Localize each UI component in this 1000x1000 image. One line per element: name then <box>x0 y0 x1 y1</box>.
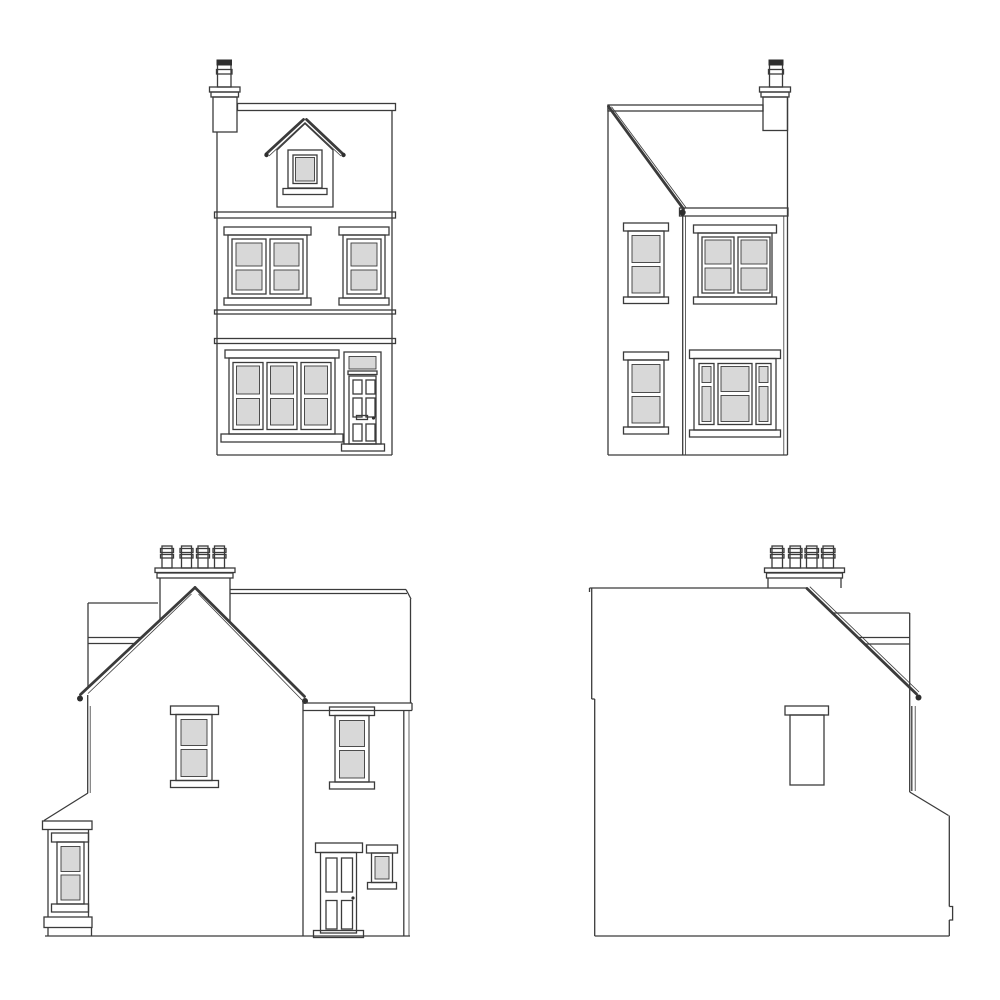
first-floor-double-sash-window <box>694 225 777 304</box>
glazing-pane <box>721 367 749 392</box>
window-sill <box>368 883 397 890</box>
side-bay <box>43 793 93 936</box>
chimney-pot-top <box>217 60 233 66</box>
chimney-pot-top <box>769 60 784 66</box>
fascia-band <box>215 310 396 314</box>
glazing-pane <box>181 720 207 746</box>
glazing-pane <box>237 366 260 394</box>
chimney-cap-band <box>760 87 791 92</box>
glazing-pane <box>705 240 731 264</box>
front-door <box>342 352 385 451</box>
gable-dormer <box>264 120 345 208</box>
glazing-pane <box>271 366 294 394</box>
dormer-window <box>283 150 327 195</box>
front-elevation-drawing <box>210 60 396 456</box>
first-floor-double-sash-window <box>224 227 311 305</box>
rear-splay <box>910 792 949 816</box>
window-header <box>624 352 669 360</box>
window-header <box>367 845 398 853</box>
window-sill <box>624 297 669 304</box>
window-sill <box>221 434 343 442</box>
glazing-pane <box>759 387 768 422</box>
chimney-cap-band <box>157 573 233 578</box>
glazing-pane <box>237 399 260 426</box>
chimney-pot <box>790 546 801 568</box>
ground-floor-window <box>221 350 343 442</box>
rear-elevation-drawing <box>608 60 791 456</box>
glazing-pane <box>705 268 731 290</box>
gable-wall-window <box>171 706 219 788</box>
glazing-pane <box>632 397 660 424</box>
bargeboard-end <box>341 153 345 157</box>
eaves-cornice <box>238 104 396 111</box>
window-header <box>224 227 311 235</box>
gutter-end <box>77 696 83 702</box>
chimney-pot <box>770 64 783 87</box>
glazing-pane <box>632 236 660 263</box>
chimney-pot <box>162 546 172 568</box>
glazing-pane <box>741 268 767 290</box>
window-sill <box>624 427 669 434</box>
window-header <box>225 350 339 358</box>
rear-wall-window <box>330 707 375 789</box>
chimney <box>765 546 845 588</box>
door-panel <box>366 424 375 441</box>
chimney-pot <box>182 546 192 568</box>
left-side-elevation-drawing <box>43 546 413 938</box>
window-sill <box>283 189 327 195</box>
glazing-pane <box>741 240 767 264</box>
glazing-pane <box>340 751 365 779</box>
catslide-roof-edge <box>609 107 684 210</box>
glazing-pane <box>340 721 365 747</box>
door-panel <box>366 380 375 394</box>
glazing-pane <box>274 270 299 290</box>
door-panel <box>353 398 362 417</box>
chimney-pot <box>823 546 834 568</box>
blocked-window <box>785 706 829 785</box>
chimney-cap-band <box>155 568 235 573</box>
side-door <box>314 843 364 938</box>
glazing-pane <box>61 875 80 900</box>
wall-notch <box>949 907 952 921</box>
catslide-roof-edge <box>807 589 917 695</box>
door-header <box>316 843 363 853</box>
glazing-pane <box>632 365 660 393</box>
elevations-drawing <box>0 0 1000 1000</box>
ridge-band <box>608 105 763 111</box>
door-panel <box>353 424 362 441</box>
glazing-pane <box>375 857 389 880</box>
gutter-end <box>916 695 922 701</box>
glazing-pane <box>759 367 768 383</box>
window-sill <box>690 430 781 437</box>
glazing-pane <box>274 243 299 266</box>
window-sill <box>339 298 389 305</box>
chimney-pot-band <box>769 70 784 75</box>
window-recess <box>790 715 824 785</box>
eaves-band <box>680 208 789 216</box>
first-floor-single-sash-window <box>339 227 389 305</box>
elevation-sheet <box>0 0 1000 1000</box>
glazing-pane <box>305 366 328 394</box>
roof-verge <box>406 590 411 600</box>
chimney-cap-band <box>211 92 239 97</box>
glazing-pane <box>702 387 711 422</box>
chimney-pot <box>218 64 232 87</box>
transom-light <box>349 357 376 370</box>
glazing-pane <box>61 847 80 872</box>
window-header <box>52 833 89 842</box>
chimney-pot <box>215 546 225 568</box>
chimney <box>210 60 241 133</box>
window-header <box>339 227 389 235</box>
door-panel <box>353 380 362 394</box>
window-header <box>624 223 669 231</box>
chimney-pot-band <box>217 70 233 75</box>
glazing-pane <box>271 399 294 426</box>
gable-roof-edge <box>195 588 305 697</box>
catslide-roof-underline <box>810 587 919 692</box>
lean-to-roof <box>44 793 88 821</box>
chimney-pot <box>807 546 818 568</box>
chimney-pot <box>772 546 783 568</box>
door-threshold <box>342 444 385 451</box>
bay-plinth <box>44 917 92 928</box>
door-panel <box>366 398 375 417</box>
bay-fascia <box>43 821 93 830</box>
door-knob <box>351 896 354 899</box>
glazing-pane <box>181 750 207 777</box>
outrigger-upper-window <box>624 223 669 304</box>
main-roof <box>230 590 411 704</box>
bargeboard-end <box>264 153 268 157</box>
gable-roof-underline <box>199 594 303 700</box>
window-header <box>171 706 219 715</box>
small-rear-window <box>367 845 398 889</box>
window-sill <box>171 781 219 788</box>
gutter-end <box>679 209 685 215</box>
door-panel <box>326 901 337 930</box>
glazing-pane <box>305 399 328 426</box>
door-panel <box>342 901 353 930</box>
window-header <box>694 225 777 233</box>
glazing-pane <box>296 158 315 182</box>
window-sill <box>330 782 375 789</box>
dormer-roof-right <box>307 120 344 155</box>
glazing-pane <box>351 270 377 290</box>
chimney-cap-band <box>765 568 845 573</box>
dormer-roof-left <box>266 120 304 155</box>
chimney-cap-band <box>761 92 789 97</box>
right-side-elevation-drawing <box>590 546 953 936</box>
dormer-roof-underline <box>269 123 341 157</box>
ground-floor-tripartite-window <box>690 350 781 437</box>
chimney-stack <box>213 97 237 132</box>
glazing-pane <box>721 396 749 422</box>
window-header <box>690 350 781 359</box>
chimney-pot <box>198 546 208 568</box>
window-header <box>330 707 375 716</box>
chimney-stack <box>763 97 788 131</box>
transom-bar <box>348 371 377 375</box>
bay-window <box>52 833 89 912</box>
window-header <box>785 706 829 715</box>
window-sill <box>694 297 777 304</box>
fascia-band <box>215 339 396 344</box>
glazing-pane <box>632 267 660 294</box>
door-knob <box>372 416 375 419</box>
rear-roof-block <box>88 603 158 687</box>
glazing-pane <box>351 243 377 266</box>
door-panel <box>342 858 353 892</box>
chimney-cap-band <box>210 87 241 92</box>
glazing-pane <box>702 367 711 383</box>
glazing-pane <box>236 243 262 266</box>
rear-roof-block <box>833 613 910 792</box>
glazing-pane <box>236 270 262 290</box>
window-sill <box>224 298 311 305</box>
door-panel <box>326 858 337 892</box>
front-gable-roof <box>77 588 308 705</box>
chimney <box>760 60 791 131</box>
chimney <box>155 546 235 622</box>
outrigger-lower-window <box>624 352 669 434</box>
floor-band <box>215 212 396 218</box>
catslide-roof-underline <box>612 107 687 208</box>
chimney-cap-band <box>767 573 843 578</box>
window-sill <box>52 904 89 912</box>
